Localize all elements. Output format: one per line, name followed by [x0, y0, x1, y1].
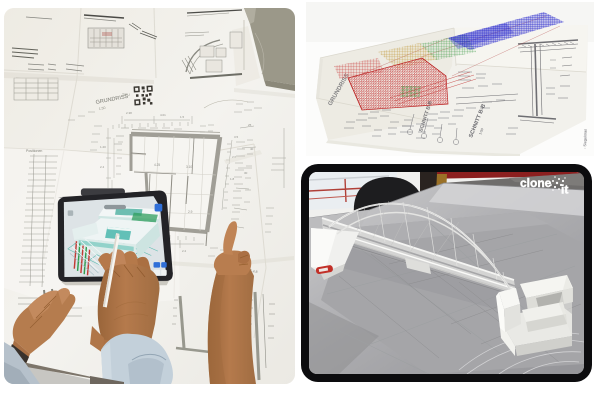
svg-text:2.4: 2.4	[100, 165, 105, 169]
svg-text:4.01: 4.01	[160, 113, 166, 117]
svg-text:it: it	[561, 183, 568, 197]
svg-text:TIFU: TIFU	[122, 93, 130, 97]
svg-text:1.5: 1.5	[180, 115, 185, 119]
svg-text:2.9: 2.9	[188, 210, 193, 214]
svg-text:2.2: 2.2	[182, 249, 187, 253]
svg-text:- Siegelman: - Siegelman	[583, 129, 588, 149]
svg-text:2.38: 2.38	[126, 111, 132, 115]
svg-text:1.8: 1.8	[230, 177, 235, 181]
svg-text:clone: clone	[520, 176, 552, 190]
svg-text:40: 40	[250, 147, 254, 151]
svg-text:3.10: 3.10	[186, 165, 192, 169]
svg-text:Positionen: Positionen	[26, 149, 42, 153]
svg-text:3.5: 3.5	[234, 135, 239, 139]
svg-text:25: 25	[248, 123, 252, 127]
svg-text:30: 30	[244, 171, 248, 175]
svg-text:1.20: 1.20	[100, 145, 106, 149]
svg-text:4.25: 4.25	[154, 163, 160, 167]
